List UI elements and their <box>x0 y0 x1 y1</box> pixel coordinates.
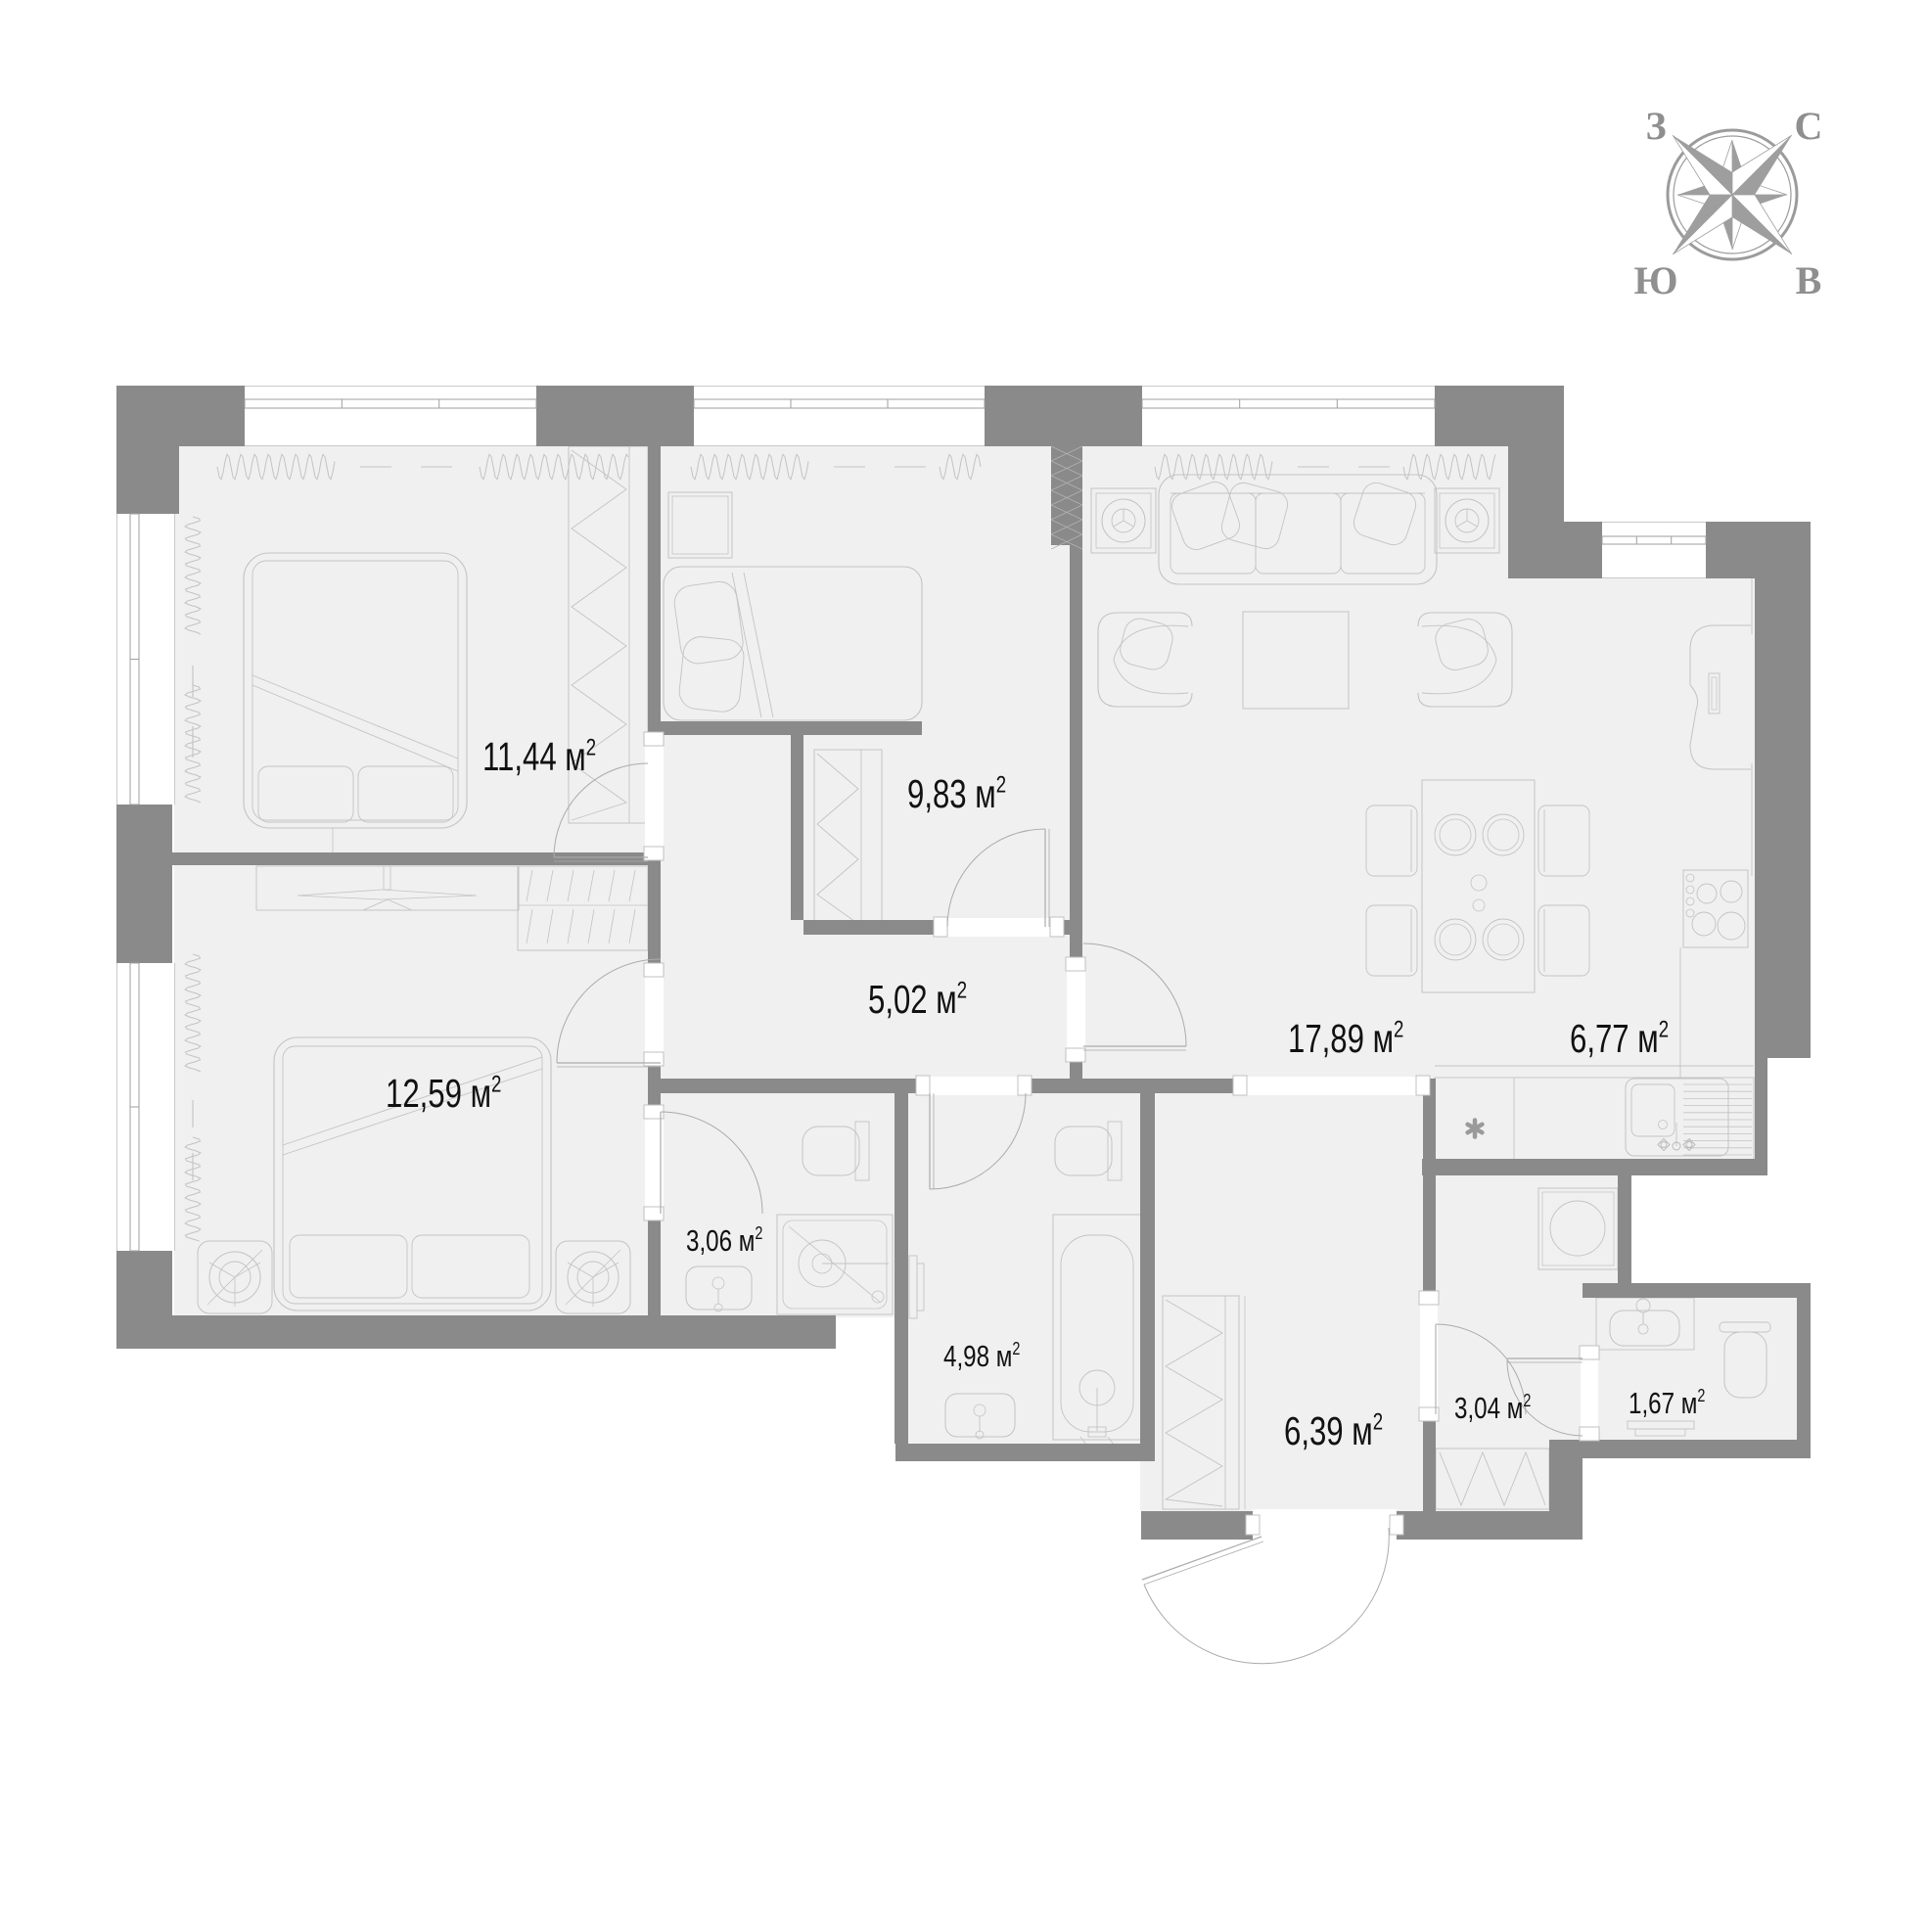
svg-text:В: В <box>1796 258 1822 302</box>
svg-text:17,89 м2: 17,89 м2 <box>1288 1015 1403 1061</box>
svg-text:Ю: Ю <box>1633 258 1677 302</box>
svg-text:9,83 м2: 9,83 м2 <box>907 770 1006 816</box>
svg-text:4,98 м2: 4,98 м2 <box>943 1338 1020 1372</box>
svg-text:3,06 м2: 3,06 м2 <box>686 1222 762 1257</box>
svg-text:11,44 м2: 11,44 м2 <box>482 733 596 779</box>
svg-text:3,04 м2: 3,04 м2 <box>1454 1390 1531 1424</box>
svg-text:6,39 м2: 6,39 м2 <box>1284 1407 1383 1453</box>
svg-text:1,67 м2: 1,67 м2 <box>1629 1385 1705 1419</box>
svg-text:12,59 м2: 12,59 м2 <box>386 1070 501 1116</box>
svg-text:З: З <box>1645 104 1666 148</box>
svg-text:С: С <box>1795 104 1823 148</box>
svg-text:6,77 м2: 6,77 м2 <box>1570 1015 1669 1061</box>
svg-text:5,02 м2: 5,02 м2 <box>868 976 967 1022</box>
